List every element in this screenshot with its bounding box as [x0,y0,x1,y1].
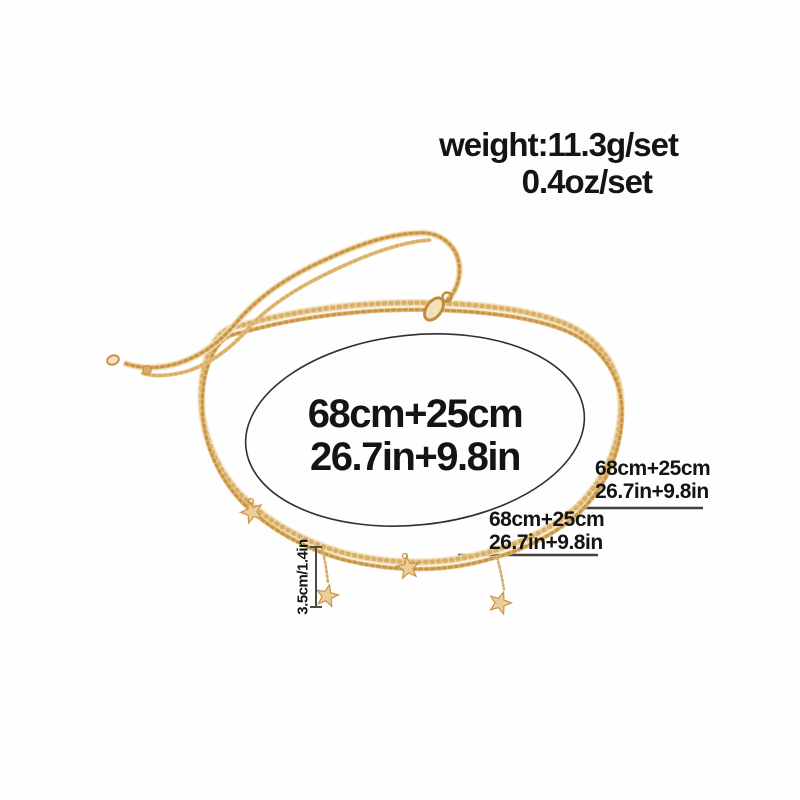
extender-end-clasp-icon [106,354,120,367]
note-lower-cm: 68cm+25cm [489,509,604,532]
center-measurement-annotation: 68cm+25cm 26.7in+9.8in [308,393,522,479]
drop-length-label: 3.5cm/1.4in [295,539,312,614]
weight-ounces-label: 0.4oz/set [439,163,652,200]
extender-end-ball-icon [143,366,151,374]
weight-annotation: weight:11.3g/set 0.4oz/set [439,126,678,200]
star-charm-icon [314,582,340,607]
center-measurement-cm: 68cm+25cm [308,393,522,436]
star-charm-icon [487,589,514,616]
note-upper-in: 26.7in+9.8in [595,481,710,504]
product-measurement-image: weight:11.3g/set 0.4oz/set 68cm+25cm 26.… [0,0,800,800]
note-upper-cm: 68cm+25cm [595,458,710,481]
drop-length-bracket [310,547,322,607]
measurement-note-upper: 68cm+25cm 26.7in+9.8in [595,458,710,503]
weight-grams-label: weight:11.3g/set [439,126,678,163]
note-lower-in: 26.7in+9.8in [489,532,604,555]
measurement-note-lower: 68cm+25cm 26.7in+9.8in [489,509,604,554]
center-measurement-in: 26.7in+9.8in [308,436,522,479]
